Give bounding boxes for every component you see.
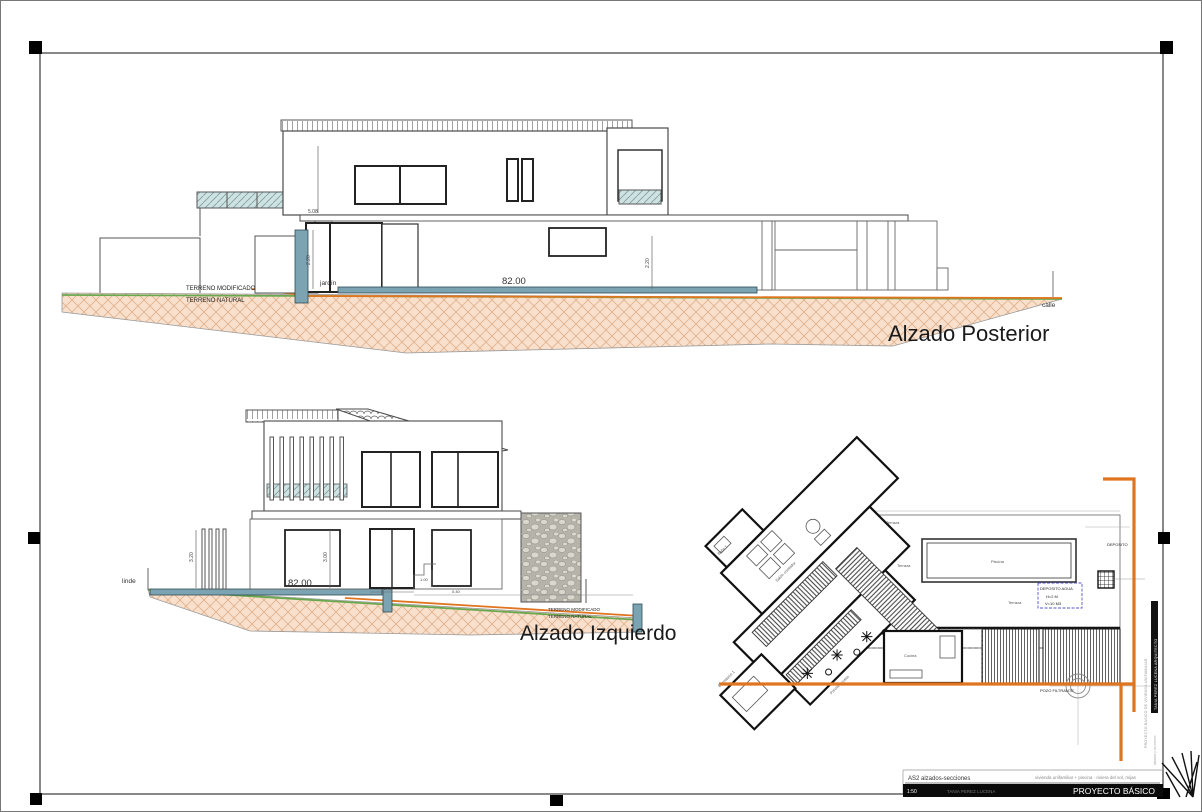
registration-mark xyxy=(29,41,42,54)
annex-left xyxy=(100,238,200,293)
roof-coping xyxy=(281,120,632,131)
roof-coping xyxy=(246,410,338,422)
annotation-side-text: PROYECTO BASICO DE VIVIENDA UNIFAMILIAR xyxy=(1144,658,1148,748)
dim-label: 0.40 xyxy=(452,589,461,594)
terreno-natural-label: TERRENO NATURAL xyxy=(186,298,245,304)
elevation-posterior: 5.08 2.20 2.20 82.00 jardín TERRENO MODI… xyxy=(62,120,1062,353)
linde-label: linde xyxy=(122,578,136,585)
dim-width-label: 82.00 xyxy=(502,276,526,287)
cad-canvas: 5.08 2.20 2.20 82.00 jardín TERRENO MODI… xyxy=(0,0,1202,812)
sliding-door xyxy=(306,223,382,292)
terrace-label: Terraza xyxy=(1008,600,1022,605)
elevation-title: Alzado Izquierdo xyxy=(520,622,676,645)
upper-volume xyxy=(283,131,630,215)
pool-label: Piscina xyxy=(991,559,1005,564)
deck-pergola xyxy=(982,629,1039,683)
narrow-window xyxy=(507,159,518,201)
annotation-bar-text: TANIA PEREZ LUCENA ARQUITECTO xyxy=(1154,639,1158,710)
street-label: calle xyxy=(1042,302,1056,309)
step xyxy=(937,268,948,290)
dim-label: 1.00 xyxy=(420,577,429,582)
deposito-v-label: V=10 M3 xyxy=(1045,601,1062,606)
tower-glass-railing xyxy=(619,190,661,204)
registration-mark xyxy=(28,532,40,544)
annotation-side-text: alzados y secciones xyxy=(1153,735,1157,765)
dim-width-label: 82.00 xyxy=(288,578,312,589)
registration-mark xyxy=(1160,41,1173,54)
sheet-scale: 1:50 xyxy=(907,789,917,795)
drawing-sheet: 5.08 2.20 2.20 82.00 jardín TERRENO MODI… xyxy=(0,0,1202,812)
fence-slats xyxy=(202,529,226,589)
pozo-label: POZO FILTRANTE xyxy=(1040,688,1074,693)
tank-grid xyxy=(1098,571,1114,588)
retaining-pillar xyxy=(295,230,308,303)
garden-label: jardín xyxy=(319,280,337,287)
deposito-h-label: H=2 M xyxy=(1046,594,1058,599)
window xyxy=(432,452,498,507)
ground-floor-right xyxy=(762,221,937,290)
elevation-title: Alzado Posterior xyxy=(888,321,1049,346)
window xyxy=(432,530,471,586)
glass-pane xyxy=(382,224,418,291)
dim-label: 2.20 xyxy=(306,255,312,265)
dim-label: 2.20 xyxy=(645,258,651,268)
dim-label: 3.20 xyxy=(189,552,195,562)
sheet-small-print: vivienda unifamiliar + piscina · riviera… xyxy=(1035,775,1137,780)
site-plan: Piscina Terraza Terraza Terraza DEPOSITO… xyxy=(638,416,1158,780)
dim-label: 2.71 xyxy=(384,586,393,591)
retaining-pillar xyxy=(383,589,392,612)
glass-railing xyxy=(267,484,347,497)
garden-slab xyxy=(150,589,382,595)
sheet-code: AS2 alzados-secciones xyxy=(908,776,970,782)
terreno-modificado-label: TERRENO MODIFICADO xyxy=(548,607,601,612)
registration-mark xyxy=(550,795,563,806)
house-plan: Dormitorio 1 Baño 1 Salón comedor Porche… xyxy=(638,416,1002,780)
registration-mark xyxy=(1158,532,1170,544)
registration-mark xyxy=(30,793,42,805)
kitchen-wing xyxy=(884,631,962,683)
window xyxy=(549,228,606,256)
wall-lines xyxy=(775,221,895,290)
floor-slab xyxy=(252,511,521,519)
dim-label: 3.00 xyxy=(323,552,329,562)
terreno-modificado-label: TERRENO MODIFICADO xyxy=(186,286,256,292)
deposito-agua-label: DEPOSITO AGUA xyxy=(1040,586,1073,591)
stone-wall xyxy=(521,513,581,602)
floor-slab xyxy=(300,215,908,221)
sheet-author: TANIA PEREZ LUCENA xyxy=(947,789,995,794)
garden-slab xyxy=(338,287,757,293)
sheet-phase: PROYECTO BÁSICO xyxy=(1073,786,1155,796)
narrow-window xyxy=(522,159,533,201)
terrace-label: Terraza xyxy=(897,563,911,568)
terreno-natural-label: TERRENO NATURAL xyxy=(548,614,592,619)
elevation-izquierdo: 3.20 3.00 2.71 1.00 0.40 82.00 linde TER… xyxy=(122,409,676,645)
room-label: Cocina xyxy=(904,653,917,658)
deposito-label: DEPOSITO xyxy=(1107,542,1128,547)
dim-label: 5.08 xyxy=(308,209,318,215)
